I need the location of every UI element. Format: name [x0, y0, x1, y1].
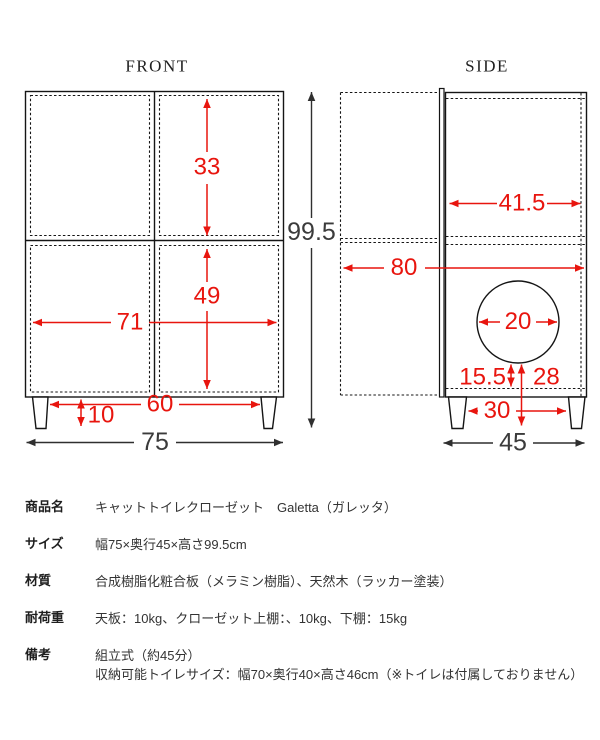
dim-label-33: 33	[194, 154, 221, 181]
dim-front-bottom-inner-height: 49	[194, 249, 221, 389]
side-left-leg	[449, 397, 467, 429]
spec-value: 幅75×奥行45×高さ99.5cm	[95, 535, 580, 554]
dim-label-28: 28	[533, 364, 560, 391]
dim-total-height: 99.5	[287, 92, 336, 428]
dim-label-75: 75	[141, 428, 169, 456]
dim-front-top-inner-height: 33	[194, 99, 221, 236]
product-dimension-sheet: FRONT 33 49 71	[0, 0, 600, 740]
side-door-edge	[440, 89, 445, 398]
dim-label-15-5: 15.5	[459, 364, 506, 391]
front-panel-top-left-dashed	[31, 96, 150, 236]
spec-label: 耐荷重	[25, 609, 95, 627]
front-right-leg	[261, 397, 277, 429]
dim-hole-bottom-from-shelf: 15.5	[459, 364, 511, 391]
front-view-title: FRONT	[125, 57, 188, 76]
spec-row-notes: 備考 組立式（約45分） 収納可能トイレサイズ：幅70×奥行40×高さ46cm（…	[25, 646, 580, 684]
dim-front-total-width: 75	[27, 428, 284, 456]
side-hidden-lines-dashed	[446, 93, 586, 397]
spec-label: 商品名	[25, 498, 95, 516]
side-view-title: SIDE	[465, 57, 509, 76]
dim-label-20: 20	[505, 308, 532, 335]
spec-label: 材質	[25, 572, 95, 590]
spec-table: 商品名 キャットトイレクローゼット Galetta（ガレッタ） サイズ 幅75×…	[25, 498, 580, 702]
dim-label-99-5: 99.5	[287, 218, 336, 246]
spec-value: 天板：10kg、クローゼット上棚：、10kg、下棚：15kg	[95, 609, 580, 628]
dim-side-total-depth: 45	[444, 429, 585, 457]
dim-side-depth-door-open: 80	[344, 254, 585, 281]
dim-label-71: 71	[117, 309, 144, 336]
dim-hole-bottom-from-floor: 28	[522, 364, 560, 426]
front-left-leg	[33, 397, 49, 429]
dim-label-10: 10	[88, 402, 115, 429]
spec-row-load-capacity: 耐荷重 天板：10kg、クローゼット上棚：、10kg、下棚：15kg	[25, 609, 580, 628]
front-panel-bottom-right-dashed	[160, 246, 279, 393]
spec-row-size: サイズ 幅75×奥行45×高さ99.5cm	[25, 535, 580, 554]
side-right-leg	[569, 397, 586, 429]
dim-hole-diameter: 20	[479, 308, 557, 335]
spec-value: 組立式（約45分） 収納可能トイレサイズ：幅70×奥行40×高さ46cm（※トイ…	[95, 646, 580, 684]
dim-label-30: 30	[484, 397, 511, 424]
dim-label-41-5: 41.5	[499, 190, 546, 217]
dim-side-leg-span: 30	[469, 397, 567, 424]
spec-label: 備考	[25, 646, 95, 664]
dim-label-80: 80	[391, 254, 418, 281]
spec-value: キャットトイレクローゼット Galetta（ガレッタ）	[95, 498, 580, 517]
dim-side-inner-depth: 41.5	[450, 190, 581, 217]
side-open-door-projection	[341, 93, 439, 396]
spec-row-material: 材質 合成樹脂化粧合板（メラミン樹脂）、天然木（ラッカー塗装）	[25, 572, 580, 591]
dim-label-49: 49	[194, 283, 221, 310]
spec-row-product-name: 商品名 キャットトイレクローゼット Galetta（ガレッタ）	[25, 498, 580, 517]
dimension-drawing: FRONT 33 49 71	[0, 0, 600, 480]
side-view: SIDE 41.5	[341, 57, 587, 457]
dim-label-45: 45	[499, 429, 527, 457]
dim-label-60: 60	[147, 391, 174, 418]
spec-value: 合成樹脂化粧合板（メラミン樹脂）、天然木（ラッカー塗装）	[95, 572, 580, 591]
spec-label: サイズ	[25, 535, 95, 553]
front-view: FRONT 33 49 71	[26, 57, 336, 457]
